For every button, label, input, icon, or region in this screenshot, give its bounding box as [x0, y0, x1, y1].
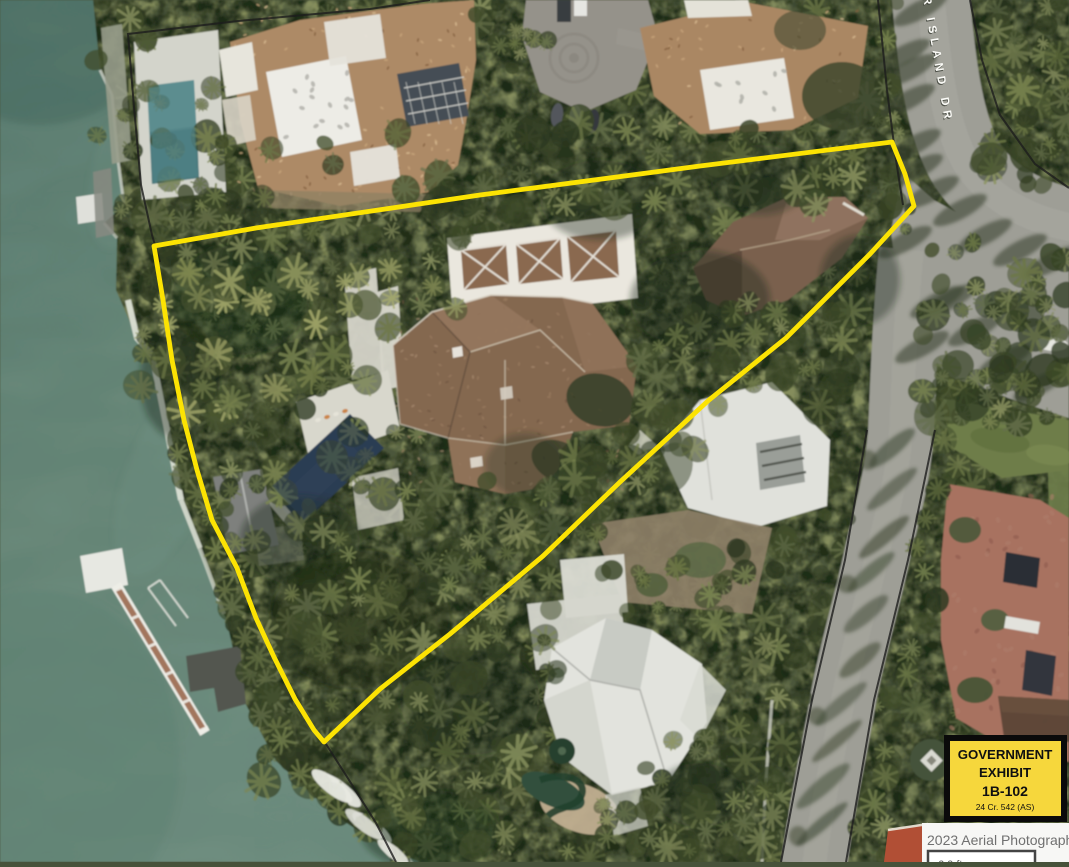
- svg-text:1B-102: 1B-102: [982, 783, 1028, 799]
- svg-text:2023 Aerial Photography: 2023 Aerial Photography: [927, 832, 1069, 848]
- svg-text:GOVERNMENT: GOVERNMENT: [958, 747, 1053, 762]
- svg-text:EXHIBIT: EXHIBIT: [979, 765, 1031, 780]
- svg-text:24 Cr. 542 (AS): 24 Cr. 542 (AS): [976, 802, 1035, 812]
